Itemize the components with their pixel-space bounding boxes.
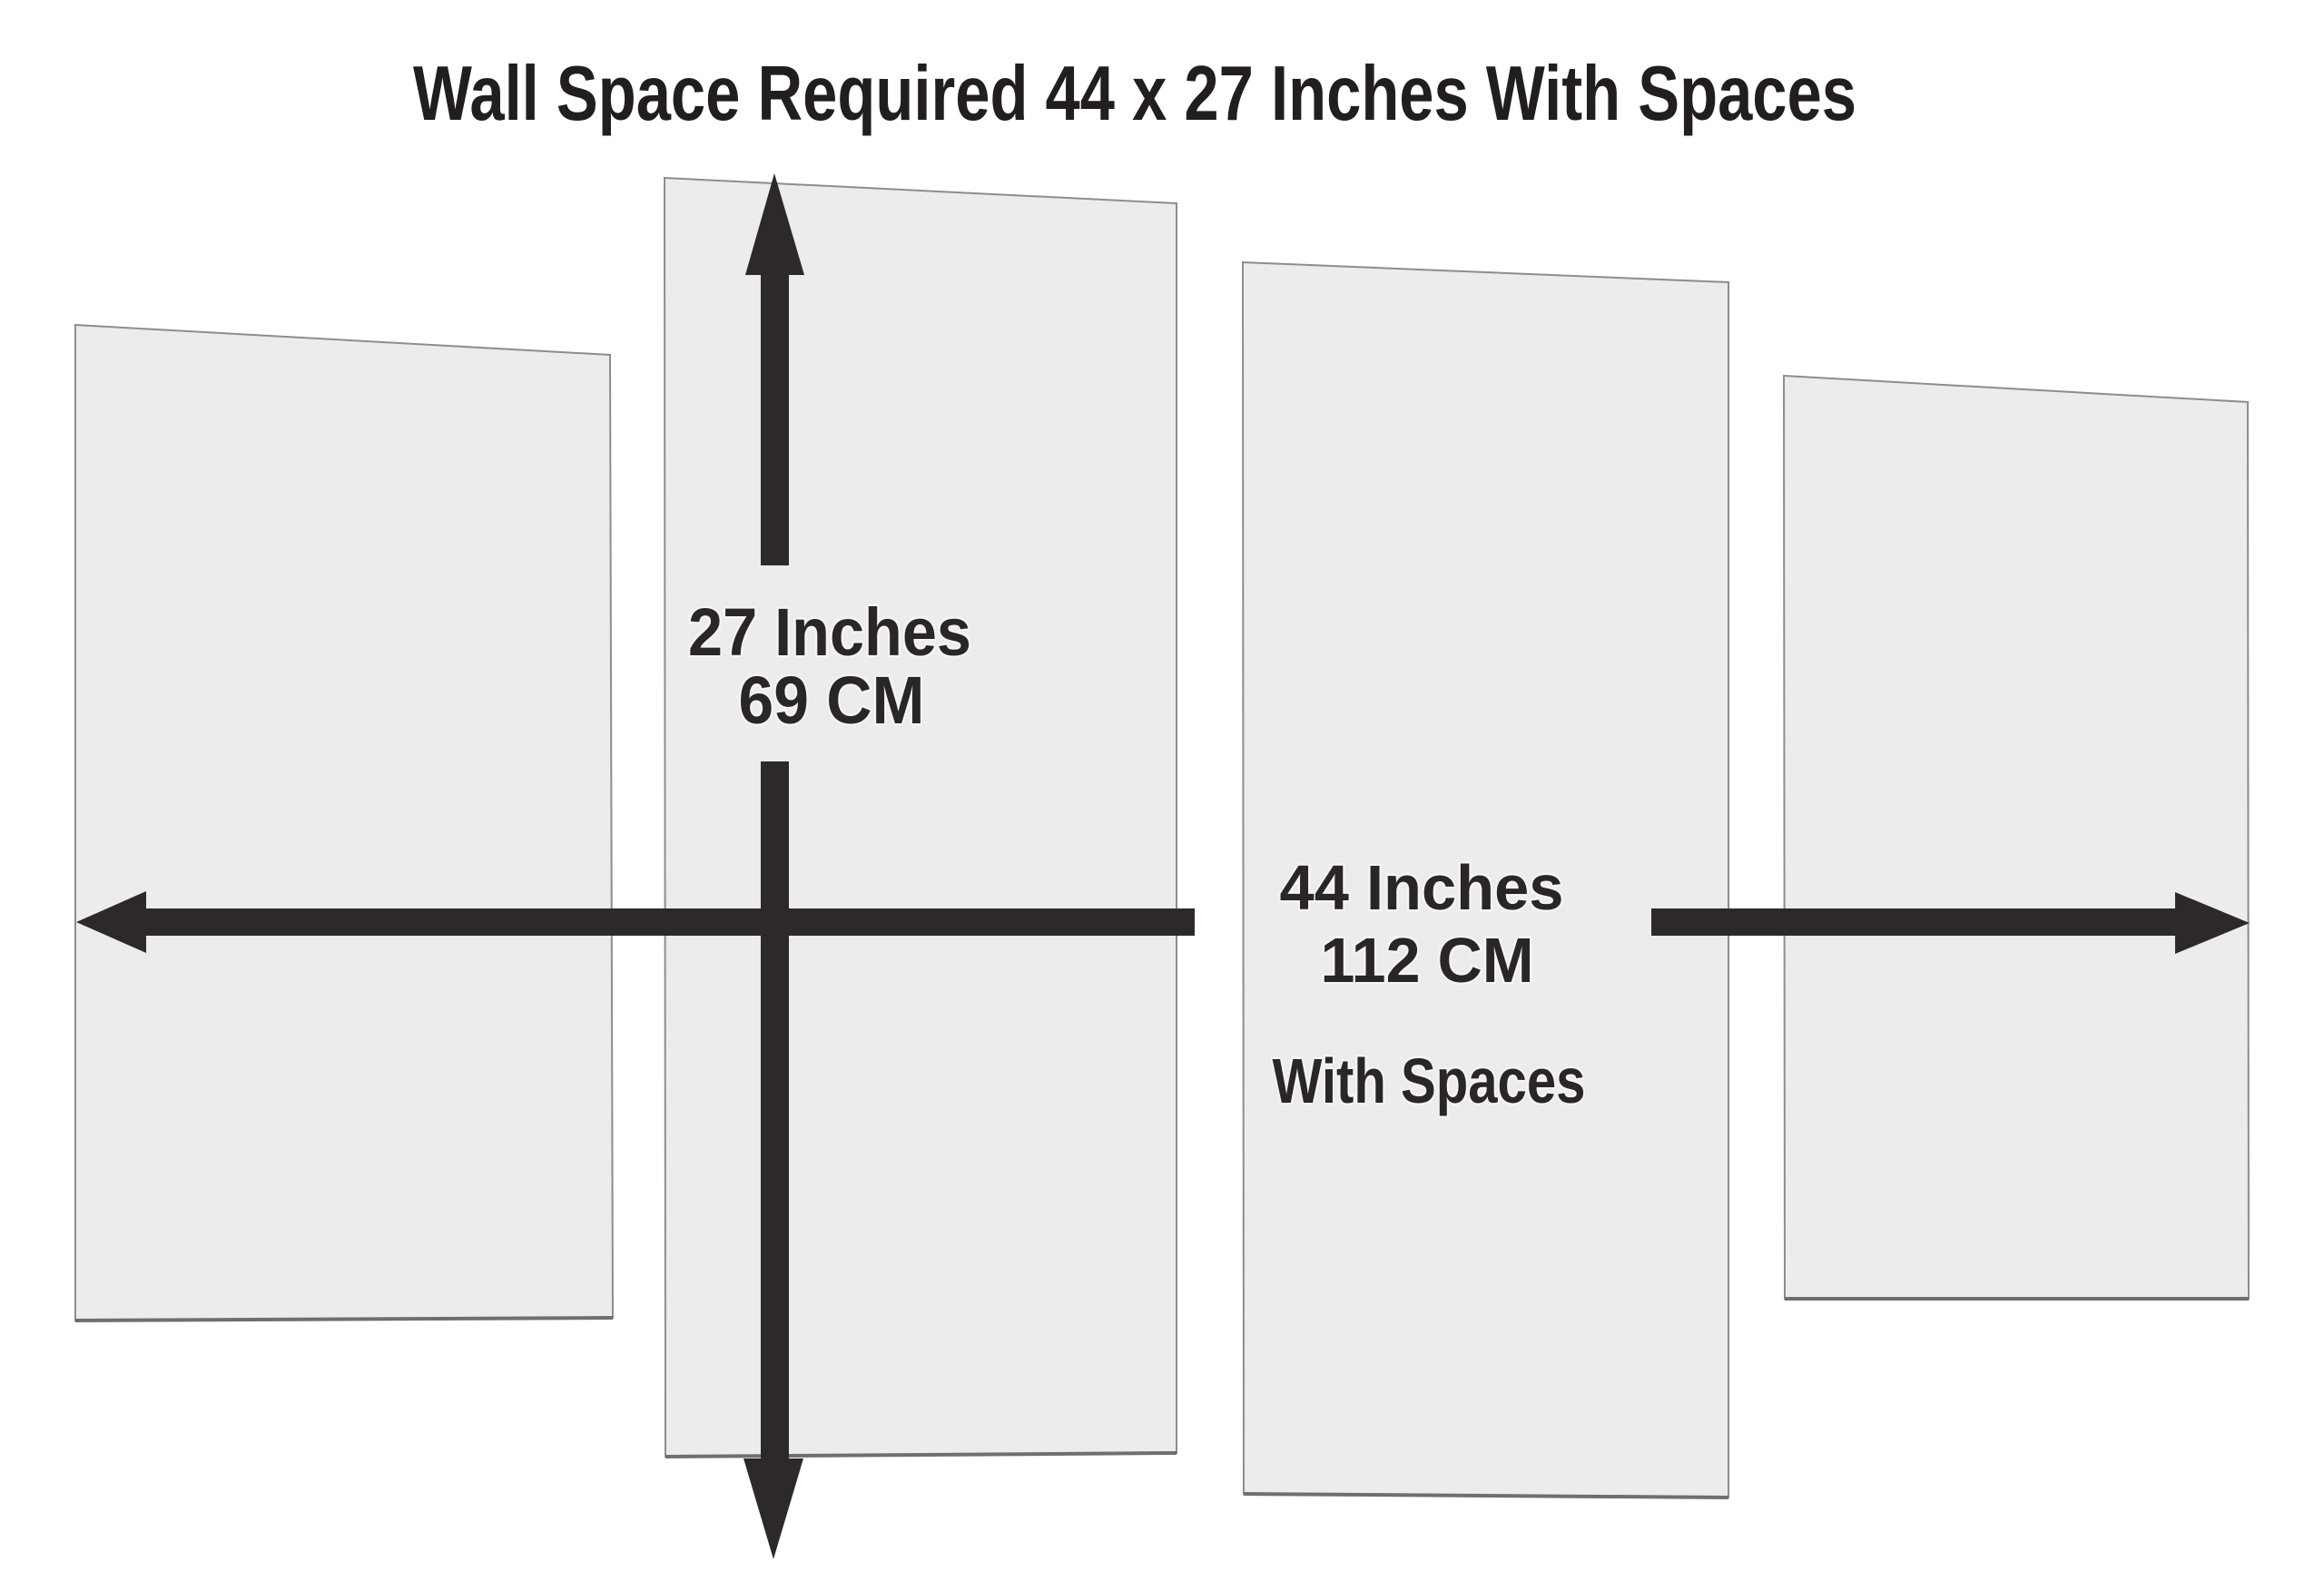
diagram-title: Wall Space Required 44 x 27 Inches With … <box>413 51 1856 137</box>
canvas-panels <box>75 178 2249 1497</box>
height-cm-label: 69 CM <box>739 663 925 738</box>
height-arrow-lower-shaft <box>761 761 789 1459</box>
width-inches-label: 44 Inches <box>1280 852 1564 923</box>
width-arrow-left-shaft <box>143 908 1195 936</box>
wall-space-diagram: Wall Space Required 44 x 27 Inches With … <box>0 0 2324 1571</box>
height-arrow-upper-shaft <box>761 272 789 565</box>
height-inches-label: 27 Inches <box>688 594 971 670</box>
canvas-panel-2 <box>665 178 1177 1457</box>
width-note-label: With Spaces <box>1273 1046 1586 1116</box>
canvas-panel-1 <box>75 325 613 1321</box>
canvas-panel-4 <box>1784 376 2249 1299</box>
width-cm-label: 112 CM <box>1321 925 1534 996</box>
width-arrow-right-shaft <box>1651 908 2176 936</box>
diagram-canvas: Wall Space Required 44 x 27 Inches With … <box>0 0 2324 1571</box>
height-arrow-down-head-icon <box>743 1458 803 1559</box>
